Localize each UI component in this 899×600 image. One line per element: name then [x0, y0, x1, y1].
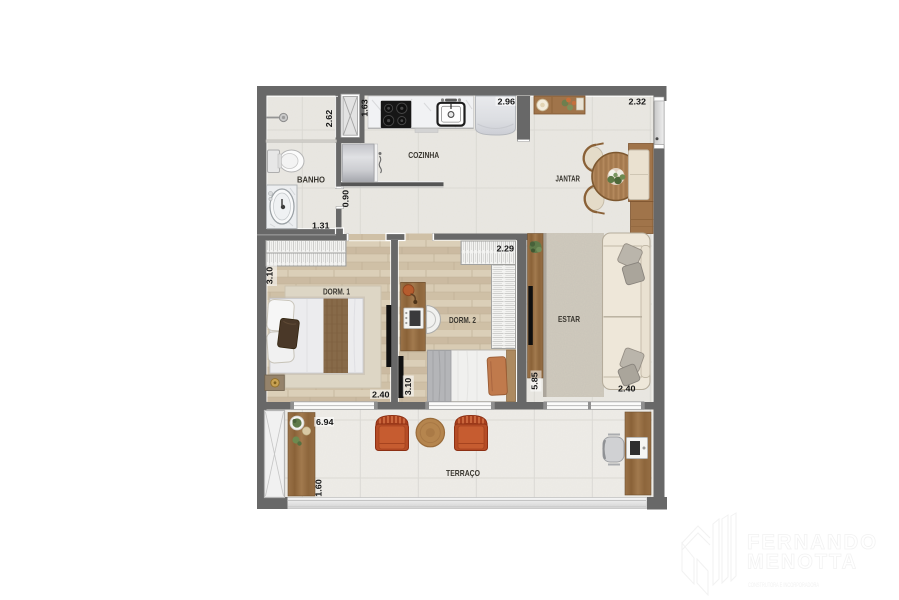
svg-text:BANHO: BANHO: [297, 174, 325, 184]
svg-text:2.29: 2.29: [497, 245, 515, 254]
svg-text:DORM. 1: DORM. 1: [323, 286, 350, 296]
svg-text:2.96: 2.96: [498, 98, 516, 107]
svg-text:5.85: 5.85: [531, 372, 540, 390]
svg-text:2.40: 2.40: [372, 391, 390, 400]
svg-text:1.60: 1.60: [315, 479, 324, 497]
svg-text:2.40: 2.40: [618, 384, 636, 393]
svg-text:COZINHA: COZINHA: [408, 150, 439, 160]
svg-text:6.94: 6.94: [316, 418, 334, 427]
svg-text:TERRAÇO: TERRAÇO: [446, 468, 480, 478]
svg-text:CONSTRUTORA E INCORPORADORA: CONSTRUTORA E INCORPORADORA: [748, 583, 819, 589]
svg-text:DORM. 2: DORM. 2: [449, 315, 476, 325]
svg-text:ESTAR: ESTAR: [558, 314, 580, 324]
svg-text:2.32: 2.32: [629, 98, 647, 107]
svg-text:0.90: 0.90: [342, 189, 351, 207]
svg-text:3.10: 3.10: [266, 266, 275, 284]
svg-text:JANTAR: JANTAR: [556, 173, 581, 183]
svg-text:MENOTTA: MENOTTA: [747, 551, 858, 574]
svg-text:2.62: 2.62: [325, 109, 334, 127]
svg-text:1.31: 1.31: [312, 222, 330, 231]
svg-text:1.63: 1.63: [361, 99, 370, 117]
svg-text:3.10: 3.10: [404, 377, 413, 395]
